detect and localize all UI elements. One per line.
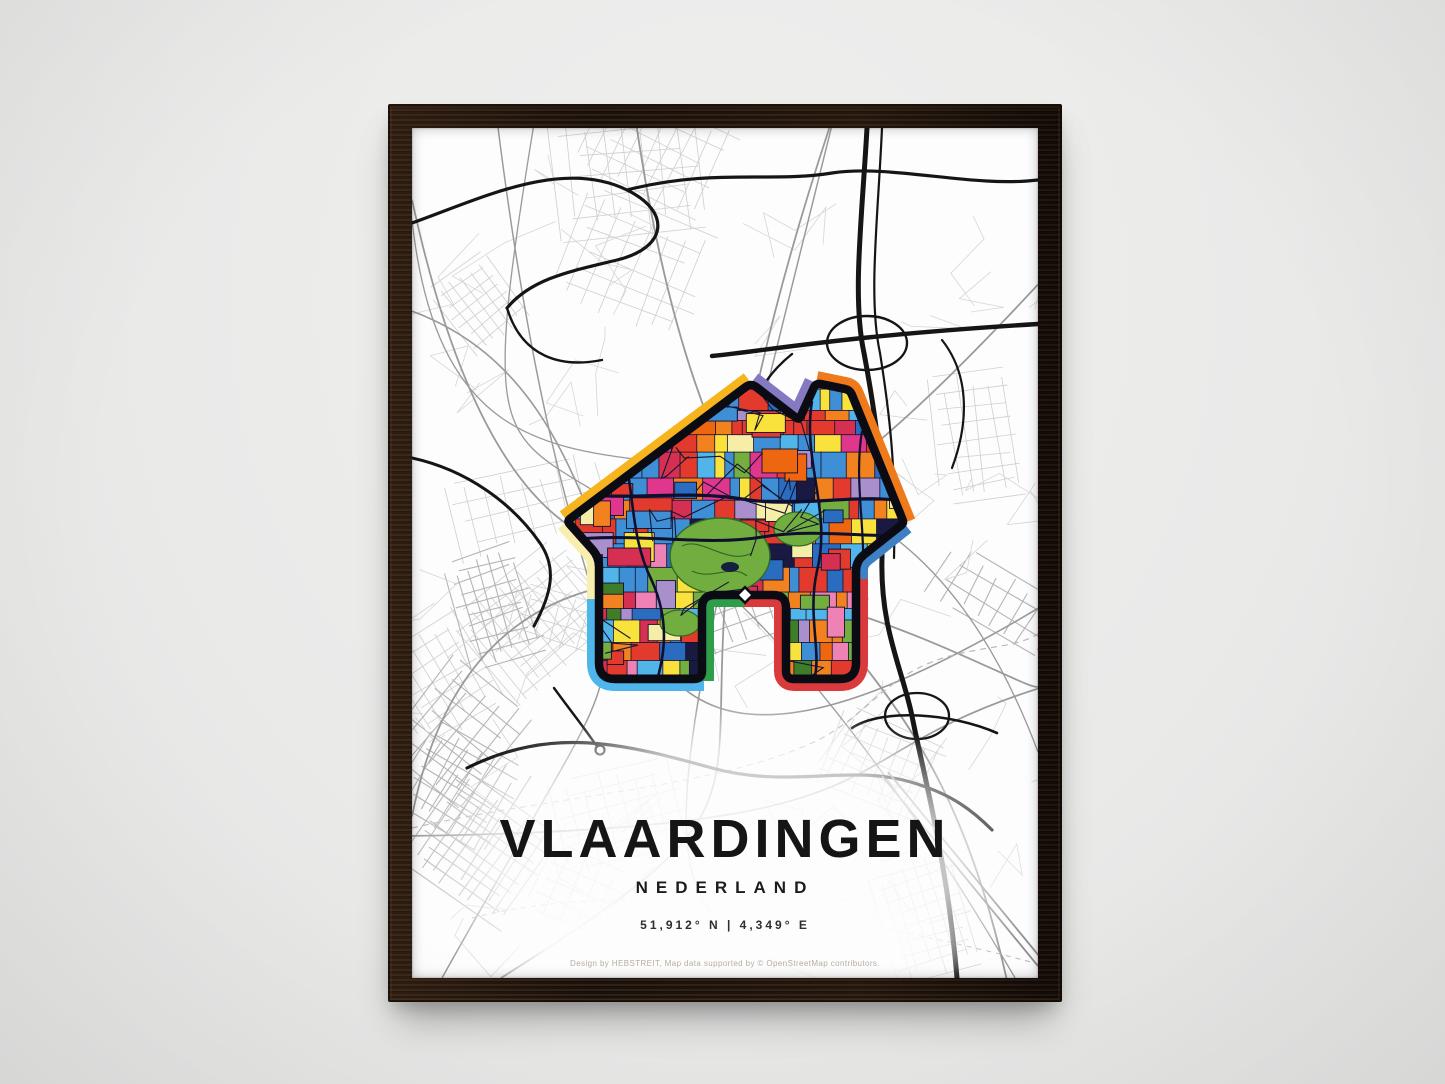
street-map-svg — [412, 128, 1038, 978]
map-poster: VLAARDINGEN NEDERLAND 51,912° N | 4,349°… — [412, 128, 1038, 978]
room-wall-scene: VLAARDINGEN NEDERLAND 51,912° N | 4,349°… — [0, 0, 1445, 1084]
picture-frame: VLAARDINGEN NEDERLAND 51,912° N | 4,349°… — [388, 104, 1062, 1002]
